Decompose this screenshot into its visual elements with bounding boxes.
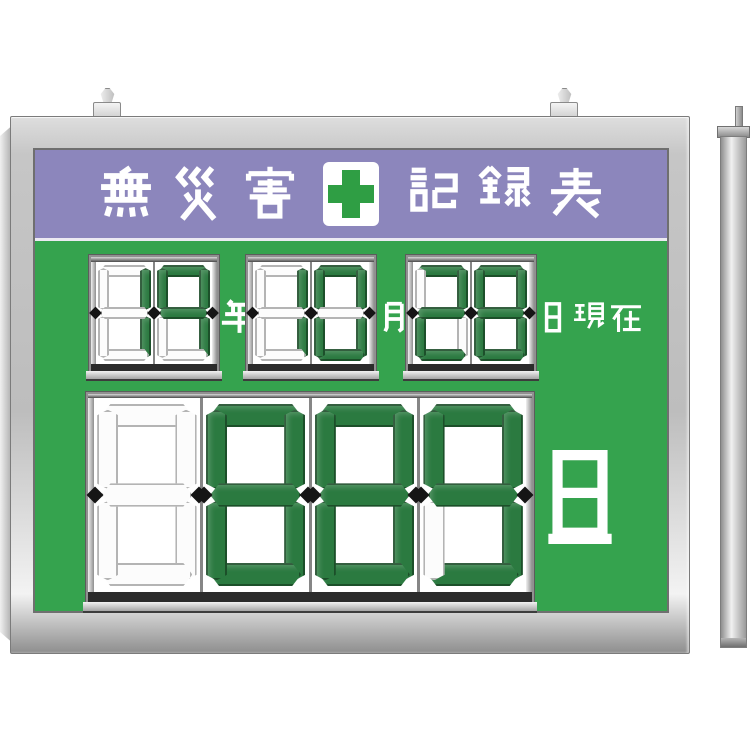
segment-g <box>210 483 301 506</box>
year-display <box>89 255 219 375</box>
segment-b <box>175 410 196 490</box>
segment-e <box>315 501 336 581</box>
flip-digit <box>203 398 309 592</box>
kanji-ki <box>403 165 461 223</box>
segment-e <box>157 316 168 358</box>
green-cross-icon <box>323 162 379 226</box>
flip-digit <box>472 262 529 364</box>
record-area <box>35 241 667 611</box>
segment-e <box>314 316 325 358</box>
segment-b <box>284 410 305 490</box>
segment-b <box>516 268 527 310</box>
segment-e <box>98 316 109 358</box>
flip-digit <box>96 262 153 364</box>
kanji-sai <box>169 165 227 223</box>
product-photo <box>0 0 750 750</box>
segment-g <box>100 307 149 319</box>
segment-g <box>316 307 365 319</box>
flip-box-base <box>86 371 222 381</box>
flip-digit <box>312 262 369 364</box>
flip-digit <box>312 398 418 592</box>
board-face <box>33 148 669 613</box>
segment-g <box>101 483 192 506</box>
segment-b <box>297 268 308 310</box>
no-accident-record-board <box>0 116 692 654</box>
kanji-hyou <box>547 165 605 223</box>
day-as-of-label <box>537 299 643 337</box>
segment-f <box>315 410 336 490</box>
segment-g <box>417 307 466 319</box>
segment-b <box>199 268 210 310</box>
segment-g <box>428 483 519 506</box>
side-slab <box>720 136 747 648</box>
segment-b <box>393 410 414 490</box>
flip-box-base <box>243 371 379 381</box>
segment-f <box>97 410 118 490</box>
title-band <box>35 150 667 238</box>
kanji-gai <box>241 165 299 223</box>
aluminum-frame <box>10 116 690 654</box>
day-display <box>406 255 536 375</box>
segment-f <box>98 268 109 310</box>
segment-f <box>423 410 444 490</box>
segment-g <box>319 483 410 506</box>
flip-digit-blank <box>94 398 200 592</box>
segment-e <box>423 501 444 581</box>
segment-e <box>206 501 227 581</box>
days-counter-display <box>86 392 534 606</box>
segment-g <box>476 307 525 319</box>
segment-f <box>206 410 227 490</box>
segment-e <box>415 316 426 358</box>
flip-digit <box>253 262 310 364</box>
segment-b <box>140 268 151 310</box>
segment-f <box>255 268 266 310</box>
flip-box-base <box>403 371 539 381</box>
segment-b <box>457 268 468 310</box>
flip-box-base <box>83 602 537 613</box>
month-display <box>246 255 376 375</box>
flip-digit <box>420 398 526 592</box>
segment-b <box>502 410 523 490</box>
segment-f <box>314 268 325 310</box>
segment-e <box>255 316 266 358</box>
segment-b <box>356 268 367 310</box>
segment-g <box>159 307 208 319</box>
days-unit-label <box>543 449 617 547</box>
segment-f <box>415 268 426 310</box>
flip-digit <box>413 262 470 364</box>
segment-e <box>97 501 118 581</box>
kanji-mu <box>97 165 155 223</box>
segment-f <box>157 268 168 310</box>
segment-f <box>474 268 485 310</box>
kanji-roku <box>475 165 533 223</box>
segment-g <box>257 307 306 319</box>
segment-e <box>474 316 485 358</box>
flip-digit <box>155 262 212 364</box>
